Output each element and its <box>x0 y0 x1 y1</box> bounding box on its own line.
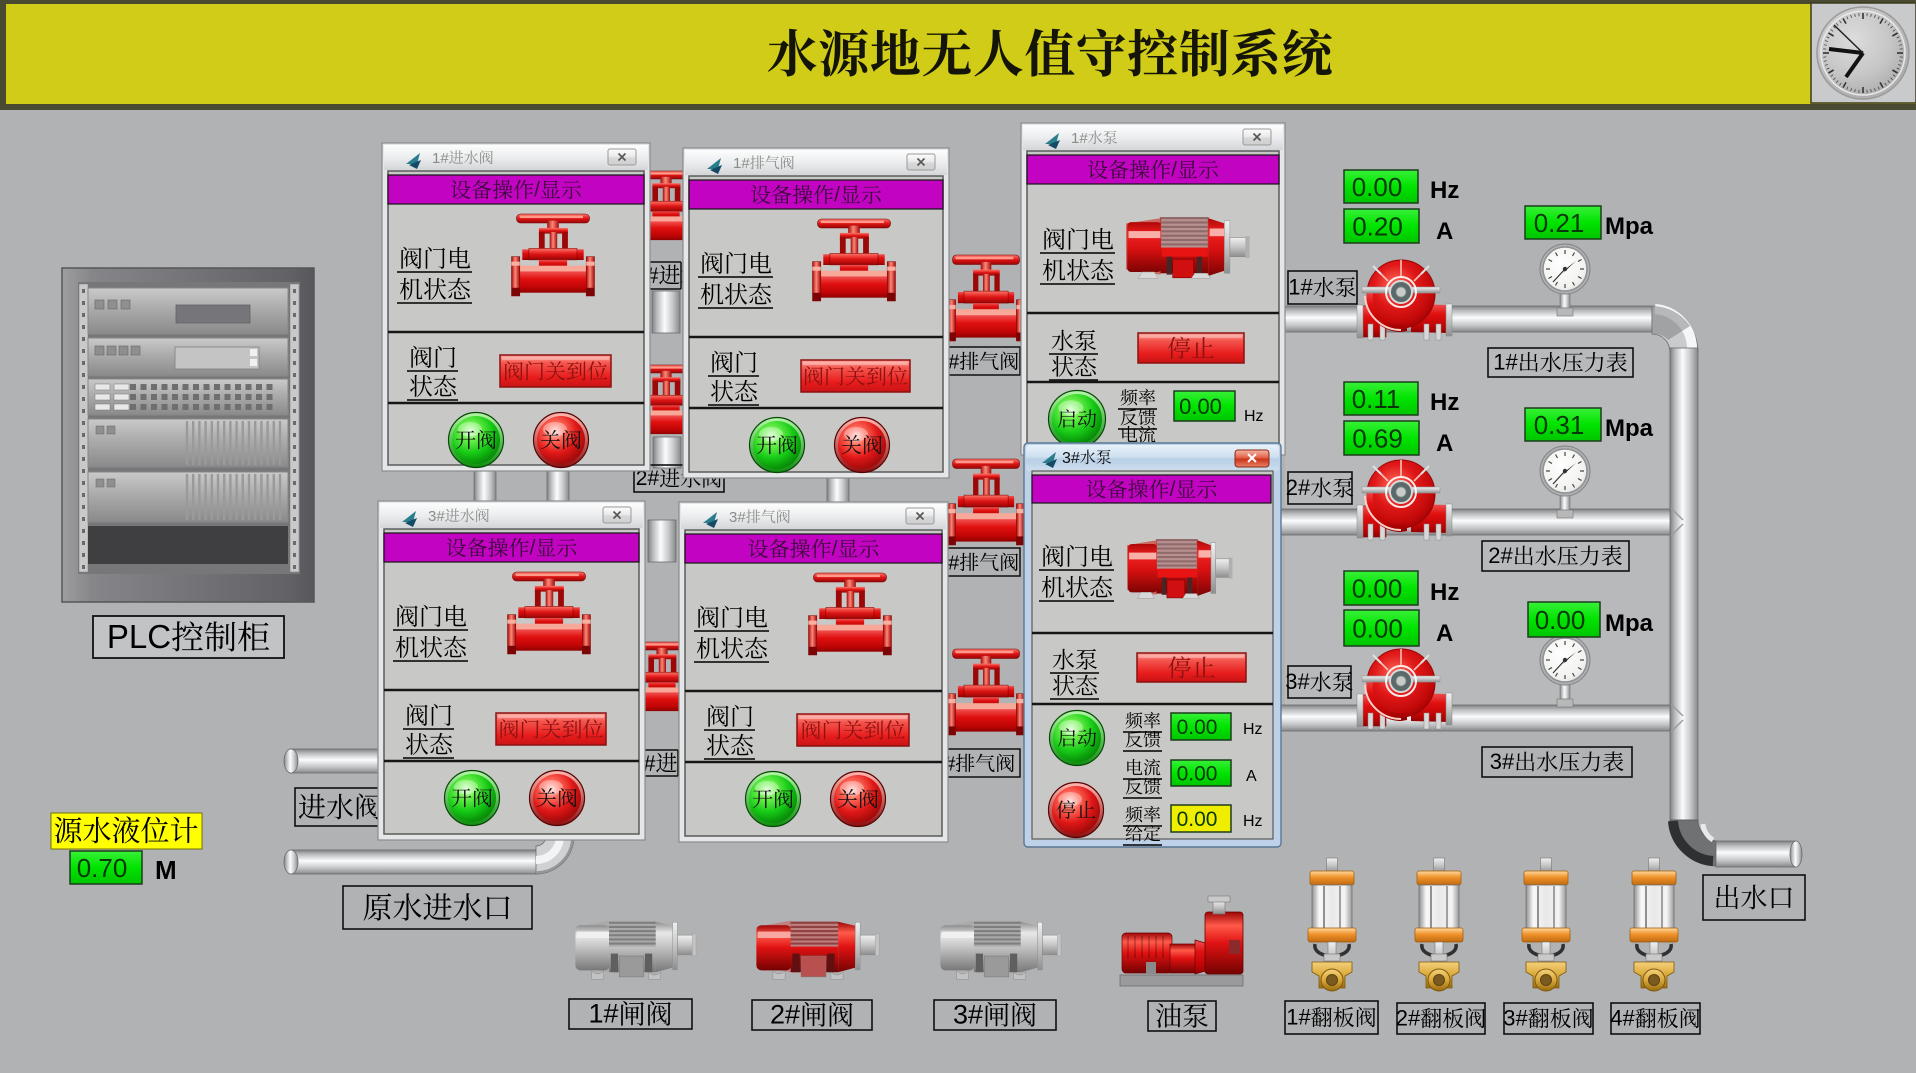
svg-text:Mpa: Mpa <box>1605 415 1654 442</box>
svg-text:2#: 2# <box>1396 1005 1421 1030</box>
svg-text:1#: 1# <box>733 155 750 172</box>
svg-text:A: A <box>1436 620 1453 647</box>
svg-text:0.00: 0.00 <box>1352 172 1403 202</box>
svg-text:A: A <box>1436 218 1453 245</box>
svg-text:/: / <box>1170 478 1176 501</box>
svg-text:Mpa: Mpa <box>1605 610 1654 637</box>
svg-text:0.00: 0.00 <box>1352 573 1403 603</box>
svg-text:/: / <box>534 179 540 202</box>
svg-text:1#: 1# <box>432 150 449 167</box>
svg-text:0.00: 0.00 <box>1177 763 1218 786</box>
svg-text:1#: 1# <box>1071 130 1088 147</box>
svg-text:0.21: 0.21 <box>1534 208 1585 238</box>
svg-text:/: / <box>1171 159 1177 182</box>
svg-text:/: / <box>834 184 840 207</box>
svg-text:A: A <box>1246 768 1257 785</box>
svg-text:Mpa: Mpa <box>1605 213 1654 240</box>
svg-text:0.31: 0.31 <box>1534 410 1585 440</box>
svg-text:1#: 1# <box>1288 274 1313 299</box>
svg-text:0.00: 0.00 <box>1535 605 1586 635</box>
svg-text:3#: 3# <box>1285 669 1310 694</box>
svg-text:0.00: 0.00 <box>1177 808 1218 831</box>
svg-text:3#: 3# <box>428 508 445 525</box>
svg-text:2#: 2# <box>1488 543 1513 568</box>
svg-text:Hz: Hz <box>1430 177 1459 204</box>
svg-text:Hz: Hz <box>1244 408 1264 425</box>
svg-text:Hz: Hz <box>1430 579 1459 606</box>
svg-text:Hz: Hz <box>1430 389 1459 416</box>
svg-text:M: M <box>155 855 177 885</box>
svg-text:0.00: 0.00 <box>1352 613 1403 643</box>
svg-text:A: A <box>1436 430 1453 457</box>
svg-text:1#: 1# <box>1286 1004 1311 1029</box>
svg-text:0.11: 0.11 <box>1352 384 1401 414</box>
svg-text:3#: 3# <box>1062 450 1080 467</box>
svg-text:/: / <box>530 537 536 560</box>
svg-text:PLC: PLC <box>107 618 171 655</box>
svg-text:3#: 3# <box>1503 1005 1528 1030</box>
svg-text:2#: 2# <box>770 1000 800 1030</box>
svg-text:0.70: 0.70 <box>77 853 128 883</box>
svg-text:0.00: 0.00 <box>1177 716 1218 739</box>
svg-text:0.00: 0.00 <box>1179 394 1222 419</box>
svg-text:3#: 3# <box>1490 749 1515 774</box>
svg-text:4#: 4# <box>1610 1005 1635 1030</box>
svg-text:3#: 3# <box>953 1000 983 1030</box>
svg-text:2#: 2# <box>1286 475 1311 500</box>
svg-text:Hz: Hz <box>1243 721 1263 738</box>
svg-text:3#: 3# <box>729 509 746 526</box>
svg-text:Hz: Hz <box>1243 813 1263 830</box>
svg-text:/: / <box>832 538 838 561</box>
svg-text:1#: 1# <box>1493 349 1518 374</box>
svg-text:0.20: 0.20 <box>1352 211 1403 241</box>
svg-text:0.69: 0.69 <box>1352 423 1403 453</box>
svg-text:1#: 1# <box>589 999 619 1029</box>
